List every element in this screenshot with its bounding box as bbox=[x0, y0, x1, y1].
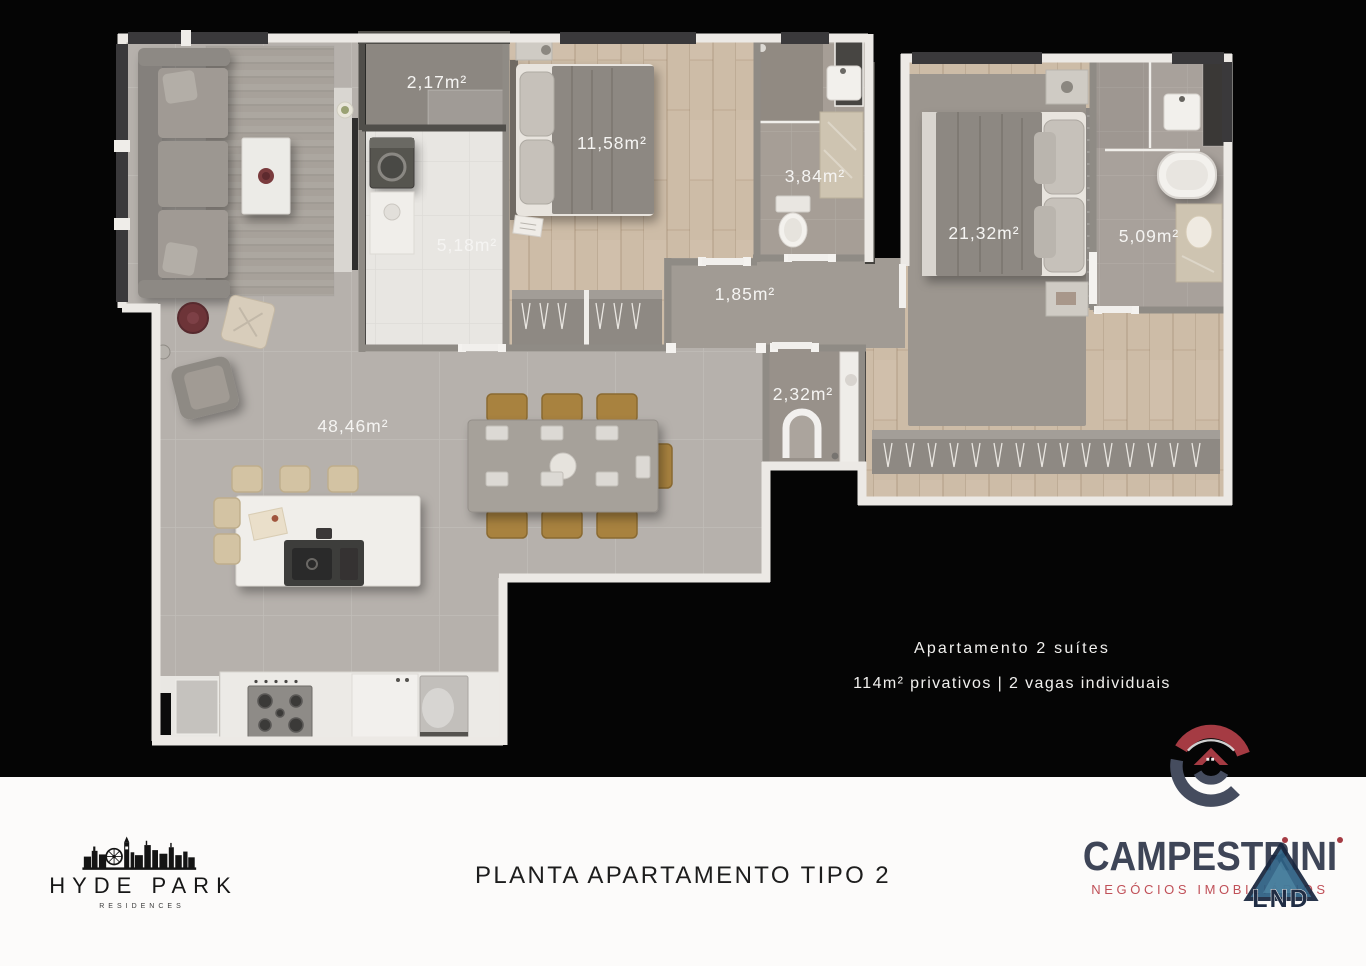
room-area-label: 3,84m² bbox=[785, 166, 845, 186]
apartment-info: Apartamento 2 suítes 114m² privativos | … bbox=[822, 640, 1202, 693]
kitchen-cabinet bbox=[352, 674, 418, 742]
sofa bbox=[138, 48, 230, 298]
room-floor-hall bbox=[664, 258, 908, 348]
toilet bbox=[786, 412, 818, 458]
closet-master bbox=[872, 430, 1220, 474]
room-area-label: 1,85m² bbox=[715, 284, 775, 304]
laundry-counter bbox=[370, 192, 414, 254]
room-area-label: 5,09m² bbox=[1119, 226, 1179, 246]
fridge bbox=[420, 676, 468, 740]
bed-master bbox=[922, 112, 1086, 276]
room-area-label: 2,32m² bbox=[773, 384, 833, 404]
apartment-info-line1: Apartamento 2 suítes bbox=[822, 640, 1202, 658]
campestrini-logo-icon bbox=[1163, 718, 1259, 814]
room-area-label: 48,46m² bbox=[317, 416, 388, 436]
suite-1-furniture bbox=[510, 40, 662, 346]
cooktop bbox=[248, 680, 312, 738]
dining-chair bbox=[542, 510, 582, 538]
flyer-page: 2,17m² 11,58m² 3,84m² 5,18m² 21,32m² 5,0… bbox=[0, 0, 1366, 966]
laundry-room bbox=[370, 138, 414, 254]
washing-machine bbox=[370, 138, 414, 188]
lnd-logo-icon: LND bbox=[1243, 843, 1319, 913]
room-area-label: 21,32m² bbox=[948, 223, 1019, 243]
bathtub bbox=[1158, 152, 1216, 198]
footer: HYDE PARK RESIDENCES PLANTA APARTAMENTO … bbox=[0, 777, 1366, 966]
mirror-cabinet bbox=[1203, 62, 1224, 146]
closet-suite-1 bbox=[512, 290, 662, 346]
lnd-label: LND bbox=[1252, 885, 1309, 913]
dining-chair bbox=[487, 394, 527, 422]
room-area-label: 2,17m² bbox=[407, 72, 467, 92]
dining-table bbox=[468, 420, 658, 512]
coffee-table bbox=[242, 138, 290, 214]
kitchen-island bbox=[236, 496, 420, 586]
dining-chair bbox=[542, 394, 582, 422]
books bbox=[513, 215, 543, 237]
apartment-info-line2: 114m² privativos | 2 vagas individuais bbox=[822, 675, 1202, 693]
dining-chair bbox=[597, 510, 637, 538]
room-area-label: 5,18m² bbox=[437, 235, 497, 255]
i-dot bbox=[1337, 837, 1343, 843]
toilet bbox=[776, 196, 810, 247]
tv-panel bbox=[352, 118, 358, 270]
room-area-label: 11,58m² bbox=[577, 133, 647, 153]
dining-chair bbox=[487, 510, 527, 538]
shower bbox=[755, 40, 823, 122]
pantry-cabinet bbox=[176, 680, 218, 734]
hyde-park-subtitle: RESIDENCES bbox=[30, 903, 250, 910]
storage-room bbox=[428, 90, 504, 126]
dining-chair bbox=[597, 394, 637, 422]
